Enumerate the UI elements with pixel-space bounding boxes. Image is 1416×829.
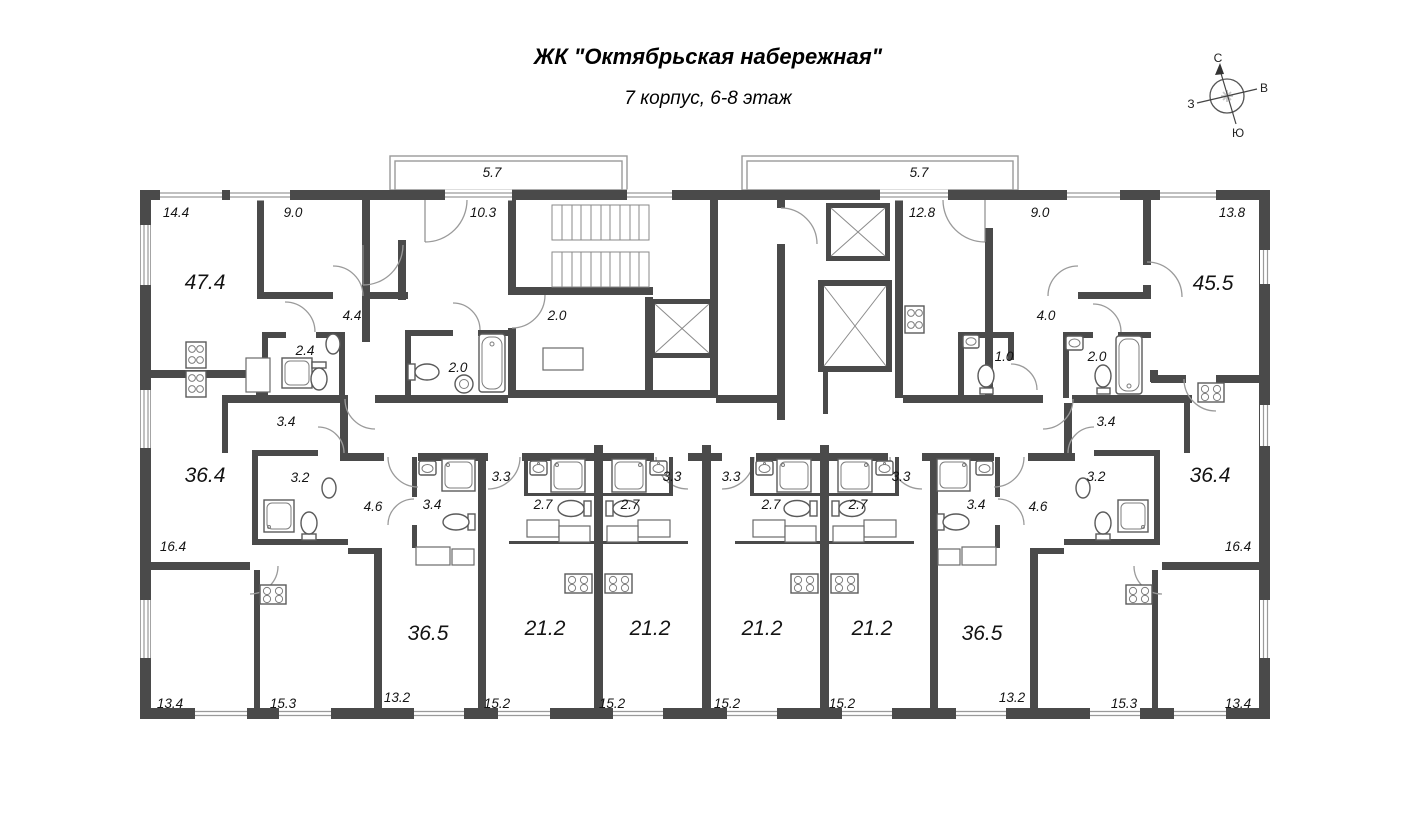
- window: [956, 708, 1006, 719]
- window: [627, 190, 672, 201]
- area-label: 47.4: [185, 271, 226, 294]
- area-label: 3.4: [967, 497, 986, 512]
- area-label: 3.2: [1087, 469, 1106, 484]
- shower-icon: [282, 358, 312, 388]
- area-label: 15.2: [829, 696, 856, 711]
- area-label: 15.3: [1111, 696, 1138, 711]
- area-label: 3.3: [663, 469, 682, 484]
- stove-icon: [1198, 383, 1224, 402]
- stove-icon: [905, 306, 924, 333]
- elevator-icon: [824, 286, 886, 366]
- walls: [140, 190, 1270, 719]
- area-label: 4.6: [1029, 499, 1048, 514]
- area-label: 4.4: [343, 308, 362, 323]
- floor-plan: ЖК "Октябрьская набережная" 7 корпус, 6-…: [0, 0, 1416, 829]
- area-label: 15.2: [714, 696, 741, 711]
- staircase: [552, 205, 649, 287]
- elevator-icon: [655, 304, 709, 353]
- window: [1174, 708, 1226, 719]
- area-label: 2.0: [448, 360, 468, 375]
- compass-south-label: Ю: [1232, 126, 1244, 140]
- window: [445, 190, 512, 201]
- area-label: 15.3: [270, 696, 297, 711]
- area-label: 36.4: [185, 464, 226, 487]
- area-label: 15.2: [599, 696, 626, 711]
- area-label: 3.4: [1097, 414, 1116, 429]
- compass-north-label: С: [1214, 51, 1223, 65]
- window: [1260, 405, 1270, 446]
- sink-icon: [455, 375, 473, 393]
- elevator-icon: [831, 208, 885, 256]
- area-label: 15.2: [484, 696, 511, 711]
- area-label: 45.5: [1193, 272, 1234, 295]
- area-label: 2.7: [533, 497, 553, 512]
- compass-rose: С В З Ю: [1187, 51, 1268, 140]
- bathtub-icon: [1116, 336, 1142, 394]
- sink-icon: [1066, 336, 1083, 350]
- area-label: 2.7: [620, 497, 640, 512]
- compass-east-label: В: [1260, 81, 1268, 95]
- window: [230, 190, 290, 201]
- area-label: 21.2: [851, 617, 893, 640]
- window: [414, 708, 464, 719]
- toilet-icon: [311, 362, 327, 390]
- stove-icon: [186, 342, 206, 368]
- area-label: 12.8: [909, 205, 936, 220]
- area-label: 3.3: [722, 469, 741, 484]
- page-title: ЖК "Октябрьская набережная": [533, 44, 883, 69]
- area-label: 21.2: [741, 617, 783, 640]
- window: [141, 600, 151, 658]
- area-label: 13.4: [1225, 696, 1251, 711]
- area-label: 3.4: [423, 497, 442, 512]
- area-label: 9.0: [284, 205, 303, 220]
- area-label: 3.3: [892, 469, 911, 484]
- area-label: 13.2: [999, 690, 1026, 705]
- window: [880, 190, 948, 201]
- toilet-icon: [408, 364, 439, 380]
- elevator-shafts: [655, 208, 886, 366]
- window: [1260, 600, 1270, 658]
- area-label: 4.0: [1037, 308, 1056, 323]
- window: [1260, 250, 1270, 284]
- area-label: 16.4: [160, 539, 186, 554]
- area-label: 21.2: [629, 617, 671, 640]
- area-label: 13.4: [157, 696, 183, 711]
- toilet-icon: [1095, 365, 1111, 394]
- stove-icon: [186, 371, 206, 397]
- window: [141, 390, 151, 448]
- area-label: 21.2: [524, 617, 566, 640]
- window: [195, 708, 247, 719]
- area-label: 3.2: [291, 470, 310, 485]
- floor-plan-page: ЖК "Октябрьская набережная" 7 корпус, 6-…: [0, 0, 1416, 829]
- window: [1160, 190, 1216, 201]
- area-label: 2.7: [761, 497, 781, 512]
- area-label: 16.4: [1225, 539, 1251, 554]
- window: [141, 225, 151, 285]
- wardrobe: [246, 358, 270, 392]
- area-label: 2.7: [848, 497, 868, 512]
- area-label: 3.4: [277, 414, 296, 429]
- area-label: 5.7: [910, 165, 929, 180]
- area-label: 1.0: [995, 349, 1014, 364]
- area-label: 10.3: [470, 205, 497, 220]
- area-label: 2.0: [1087, 349, 1107, 364]
- window: [160, 190, 222, 201]
- area-label: 2.0: [547, 308, 567, 323]
- toilet-icon: [978, 365, 994, 394]
- area-label: 36.4: [1190, 464, 1231, 487]
- area-label: 4.6: [364, 499, 383, 514]
- bathtub-icon: [479, 334, 505, 392]
- area-label: 14.4: [163, 205, 189, 220]
- area-label: 36.5: [962, 622, 1003, 645]
- area-label: 2.4: [295, 343, 315, 358]
- area-label: 13.2: [384, 690, 411, 705]
- sink-icon: [963, 335, 979, 348]
- window: [1067, 190, 1120, 201]
- area-label: 3.3: [492, 469, 511, 484]
- page-subtitle: 7 корпус, 6-8 этаж: [624, 88, 792, 109]
- area-label: 9.0: [1031, 205, 1050, 220]
- wardrobe: [543, 348, 583, 370]
- area-label: 36.5: [408, 622, 449, 645]
- area-label: 13.8: [1219, 205, 1246, 220]
- sink-icon: [326, 334, 340, 354]
- compass-west-label: З: [1187, 97, 1194, 111]
- area-label: 5.7: [483, 165, 502, 180]
